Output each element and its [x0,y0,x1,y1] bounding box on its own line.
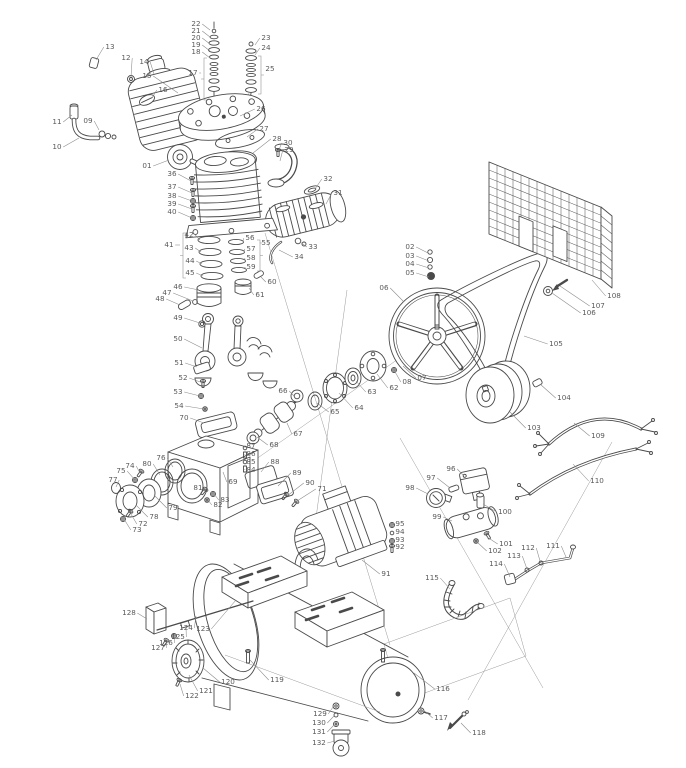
svg-text:12: 12 [121,53,130,62]
motor-drawing [282,478,392,578]
part-callout-53: 53 [173,387,200,396]
svg-text:17: 17 [188,68,197,77]
hub-bearing-set-drawing [308,351,409,410]
svg-text:115: 115 [425,573,439,582]
svg-text:88: 88 [270,457,280,466]
svg-text:97: 97 [426,473,435,482]
part-callout-54: 54 [174,401,204,410]
part-callout-97: 97 [426,473,450,488]
svg-text:24: 24 [261,43,271,52]
svg-text:41: 41 [164,240,173,249]
part-callout-12: 12 [121,53,132,77]
part-callout-95: 95 [393,519,405,528]
part-callout-59: 59 [245,262,256,271]
callout-bracket [258,56,264,94]
svg-text:13: 13 [105,42,114,51]
svg-text:52: 52 [178,373,187,382]
intake-elbow-pipe-drawing [70,104,116,139]
part-callout-60: 60 [261,277,277,286]
svg-text:125: 125 [171,632,185,641]
part-callout-17: 17 [188,68,201,77]
svg-text:43: 43 [184,243,193,252]
part-callout-131: 131 [312,725,334,736]
svg-text:51: 51 [174,358,183,367]
svg-text:117: 117 [434,713,448,722]
svg-text:80: 80 [142,459,152,468]
svg-text:131: 131 [312,727,326,736]
svg-text:94: 94 [395,527,405,536]
svg-text:123: 123 [196,624,210,633]
svg-text:89: 89 [292,468,302,477]
svg-text:84: 84 [246,465,256,474]
part-callout-107: 107 [560,286,605,310]
part-callout-85: 85 [245,457,256,466]
part-callout-58: 58 [245,253,256,262]
wrist-pin-small-drawing [253,270,264,279]
svg-text:100: 100 [498,507,512,516]
svg-text:107: 107 [591,301,605,310]
svg-text:22: 22 [191,19,200,28]
part-callout-70: 70 [179,413,204,423]
valve-stack-right-drawing [246,42,257,102]
callout-bracket [201,58,207,100]
svg-text:63: 63 [367,387,376,396]
svg-text:44: 44 [185,256,195,265]
part-callout-98: 98 [405,483,428,494]
motor-fasteners-drawing [389,523,394,553]
part-callout-57: 57 [244,244,256,253]
part-callout-49: 49 [173,313,200,323]
part-callout-91: 91 [362,560,391,578]
svg-text:98: 98 [405,483,415,492]
svg-text:83: 83 [220,495,229,504]
part-callout-56: 56 [243,233,255,242]
svg-text:26: 26 [256,104,266,113]
part-callout-115: 115 [425,573,450,589]
svg-text:54: 54 [174,401,184,410]
svg-text:56: 56 [245,233,255,242]
svg-text:09: 09 [83,116,93,125]
svg-text:118: 118 [472,728,486,737]
svg-text:34: 34 [294,252,304,261]
part-callout-09: 09 [83,116,99,130]
svg-text:04: 04 [405,259,415,268]
svg-text:71: 71 [317,484,326,493]
svg-text:81: 81 [193,483,202,492]
svg-text:48: 48 [155,294,165,303]
svg-text:127: 127 [151,643,165,652]
svg-text:67: 67 [293,429,302,438]
svg-text:05: 05 [405,268,414,277]
svg-text:33: 33 [308,242,317,251]
svg-text:45: 45 [185,268,194,277]
svg-text:65: 65 [330,407,339,416]
part-callout-33: 33 [300,242,318,251]
svg-text:79: 79 [168,503,178,512]
wheel-drawing [172,640,204,687]
part-callout-11: 11 [52,115,72,126]
svg-text:08: 08 [402,377,412,386]
svg-text:11: 11 [52,117,61,126]
svg-text:57: 57 [246,244,255,253]
svg-text:78: 78 [149,512,159,521]
part-callout-106: 106 [552,293,596,317]
part-callout-77: 77 [108,475,119,487]
svg-text:132: 132 [312,738,326,747]
drain-plug-drawing [418,708,430,714]
svg-text:14: 14 [139,57,149,66]
svg-text:111: 111 [546,541,560,550]
svg-text:109: 109 [591,431,605,440]
svg-text:112: 112 [521,543,535,552]
part-callout-99: 99 [432,512,452,521]
svg-text:61: 61 [255,290,264,299]
part-callout-01: 01 [142,160,169,170]
svg-text:64: 64 [354,403,364,412]
svg-text:113: 113 [507,551,521,560]
piston-rings-large-drawing [198,236,223,279]
svg-text:49: 49 [173,313,183,322]
svg-text:86: 86 [246,449,256,458]
svg-text:69: 69 [228,477,238,486]
svg-text:104: 104 [557,393,571,402]
svg-text:91: 91 [381,569,390,578]
svg-text:103: 103 [527,423,541,432]
guard-knob-bolt-drawing [544,280,568,296]
part-callout-34: 34 [279,250,304,261]
part-callout-104: 104 [540,384,571,402]
connecting-rods-drawing [195,314,277,389]
part-callout-122: 122 [180,684,199,700]
part-callout-06: 06 [379,283,404,302]
svg-text:53: 53 [173,387,182,396]
flywheel-fasteners-drawing [427,250,435,280]
svg-text:10: 10 [52,142,62,151]
switch-fitting-drawing [448,484,459,492]
svg-text:122: 122 [185,691,199,700]
svg-text:28: 28 [272,134,282,143]
exploded-parts-diagram: 0102030405060708091011121314151617181920… [0,0,686,768]
part-callout-93: 93 [393,535,405,544]
svg-text:60: 60 [267,277,277,286]
part-callout-129: 129 [313,707,333,718]
cylinder-bolts-drawing [189,177,195,221]
svg-text:110: 110 [590,476,604,485]
svg-text:74: 74 [125,461,135,470]
svg-text:76: 76 [156,453,166,462]
svg-text:70: 70 [179,413,189,422]
flywheel-drawing [389,288,485,384]
svg-text:130: 130 [312,718,326,727]
svg-text:120: 120 [221,677,235,686]
part-callout-10: 10 [52,138,79,151]
svg-text:32: 32 [323,174,332,183]
svg-text:40: 40 [167,207,177,216]
svg-text:01: 01 [142,161,151,170]
part-callout-43: 43 [184,243,201,252]
part-callout-55: 55 [260,238,271,247]
svg-text:121: 121 [199,686,213,695]
part-callout-118: 118 [461,723,486,737]
pressure-gauge-drawing [427,489,452,508]
piston-large-drawing [197,284,221,307]
piston-small-drawing [235,279,251,295]
svg-text:25: 25 [265,64,274,73]
svg-text:75: 75 [116,466,125,475]
part-callout-128: 128 [122,608,147,619]
svg-text:90: 90 [305,478,315,487]
part-callout-13: 13 [96,42,115,60]
part-callout-44: 44 [185,256,202,265]
svg-text:23: 23 [261,33,270,42]
svg-text:68: 68 [269,440,279,449]
part-callout-05: 05 [405,268,429,277]
piston-rings-small-drawing [229,239,247,272]
svg-text:07: 07 [417,373,426,382]
svg-text:105: 105 [549,339,563,348]
svg-text:36: 36 [167,169,177,178]
part-callout-102: 102 [477,542,502,555]
part-callout-88: 88 [261,457,280,472]
diagram-canvas: 0102030405060708091011121314151617181920… [0,0,686,768]
part-callout-105: 105 [524,336,563,348]
svg-text:06: 06 [379,283,389,292]
svg-text:42: 42 [184,230,193,239]
svg-text:73: 73 [132,525,141,534]
svg-text:62: 62 [389,383,398,392]
crankcase-drawing [168,436,258,535]
pressure-switch-drawing [459,467,492,502]
part-callout-87: 87 [245,441,256,450]
part-callout-41: 41 [164,240,180,249]
svg-text:46: 46 [173,282,183,291]
part-callout-25: 25 [264,64,275,73]
svg-text:108: 108 [607,291,621,300]
check-valve-drawing [447,711,468,731]
breather-plate-drawing [195,411,238,438]
svg-text:31: 31 [333,188,342,197]
svg-text:99: 99 [432,512,442,521]
part-callout-130: 130 [312,716,334,727]
svg-text:16: 16 [158,85,168,94]
svg-text:96: 96 [446,464,456,473]
belt-guard-drawing [489,162,612,288]
part-callout-46: 46 [173,282,199,291]
svg-text:27: 27 [259,124,268,133]
svg-text:102: 102 [488,546,502,555]
part-callout-84: 84 [245,465,256,474]
svg-text:59: 59 [246,262,256,271]
part-callout-40: 40 [167,207,192,218]
part-callout-45: 45 [185,268,203,277]
svg-text:129: 129 [313,709,327,718]
vibration-pad-drawing [146,603,166,634]
svg-text:30: 30 [283,138,293,147]
svg-text:50: 50 [173,334,183,343]
part-callout-132: 132 [312,738,335,747]
valve-stack-left-drawing [209,22,220,104]
part-callout-113: 113 [507,551,527,569]
flexible-hose-drawing [444,581,484,619]
svg-text:55: 55 [261,238,270,247]
svg-text:37: 37 [167,182,176,191]
part-callout-127: 127 [151,642,167,652]
svg-text:77: 77 [108,475,117,484]
svg-text:93: 93 [395,535,404,544]
part-callout-51: 51 [174,358,197,367]
rod-clamp-hardware-drawing [193,362,211,412]
svg-text:116: 116 [436,684,450,693]
part-callout-112: 112 [521,543,540,561]
svg-text:95: 95 [395,519,404,528]
tank-bolts-drawing [246,649,386,664]
svg-text:66: 66 [278,386,288,395]
svg-text:114: 114 [489,559,503,568]
motor-pulley-drawing [466,361,530,423]
part-callout-32: 32 [315,174,333,189]
svg-text:58: 58 [246,253,256,262]
svg-text:119: 119 [270,675,284,684]
part-callout-68: 68 [257,437,279,449]
part-callout-24: 24 [255,43,271,55]
caster-parts-drawing [332,703,350,756]
svg-text:15: 15 [142,71,151,80]
svg-text:87: 87 [246,441,255,450]
pulley-key-drawing [532,378,543,388]
part-callout-50: 50 [173,334,202,348]
svg-text:128: 128 [122,608,136,617]
part-callout-36: 36 [167,169,191,181]
part-callout-94: 94 [393,527,405,536]
svg-text:85: 85 [246,457,255,466]
part-callout-04: 04 [405,259,429,268]
svg-text:02: 02 [405,242,414,251]
part-callout-86: 86 [245,449,256,458]
